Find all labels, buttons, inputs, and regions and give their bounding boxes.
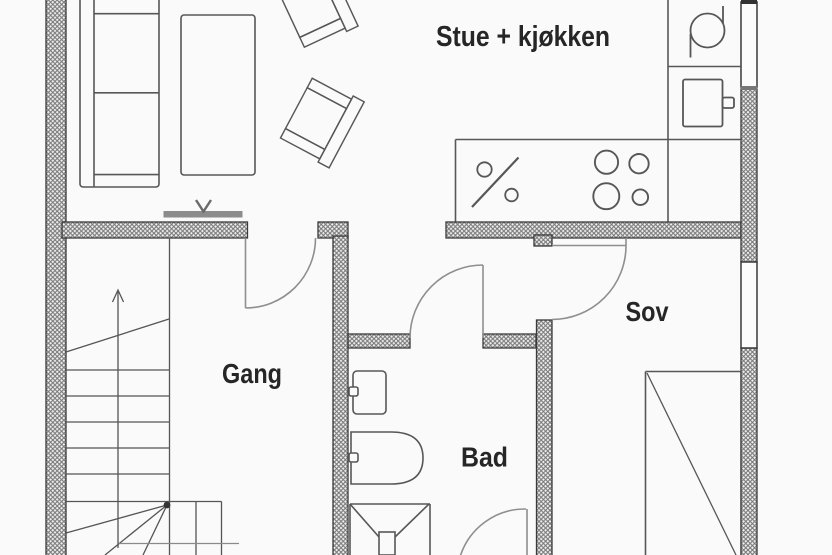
svg-text:Gang: Gang [222, 358, 282, 389]
svg-text:Sov: Sov [626, 296, 669, 327]
svg-text:Stue + kjøkken: Stue + kjøkken [436, 21, 610, 53]
svg-text:Bad: Bad [461, 442, 508, 473]
